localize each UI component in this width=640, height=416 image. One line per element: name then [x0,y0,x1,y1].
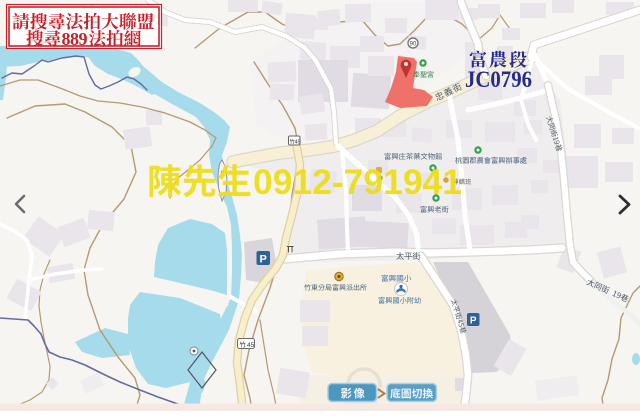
svg-text:0912-791941: 0912-791941 [253,163,462,202]
svg-text:889: 889 [62,29,88,49]
svg-text:45: 45 [247,342,255,349]
svg-text:45: 45 [295,140,301,146]
svg-text:JC0796: JC0796 [465,67,532,92]
svg-text:90: 90 [410,42,417,48]
svg-text:P: P [260,254,267,266]
svg-text:P: P [470,316,477,327]
